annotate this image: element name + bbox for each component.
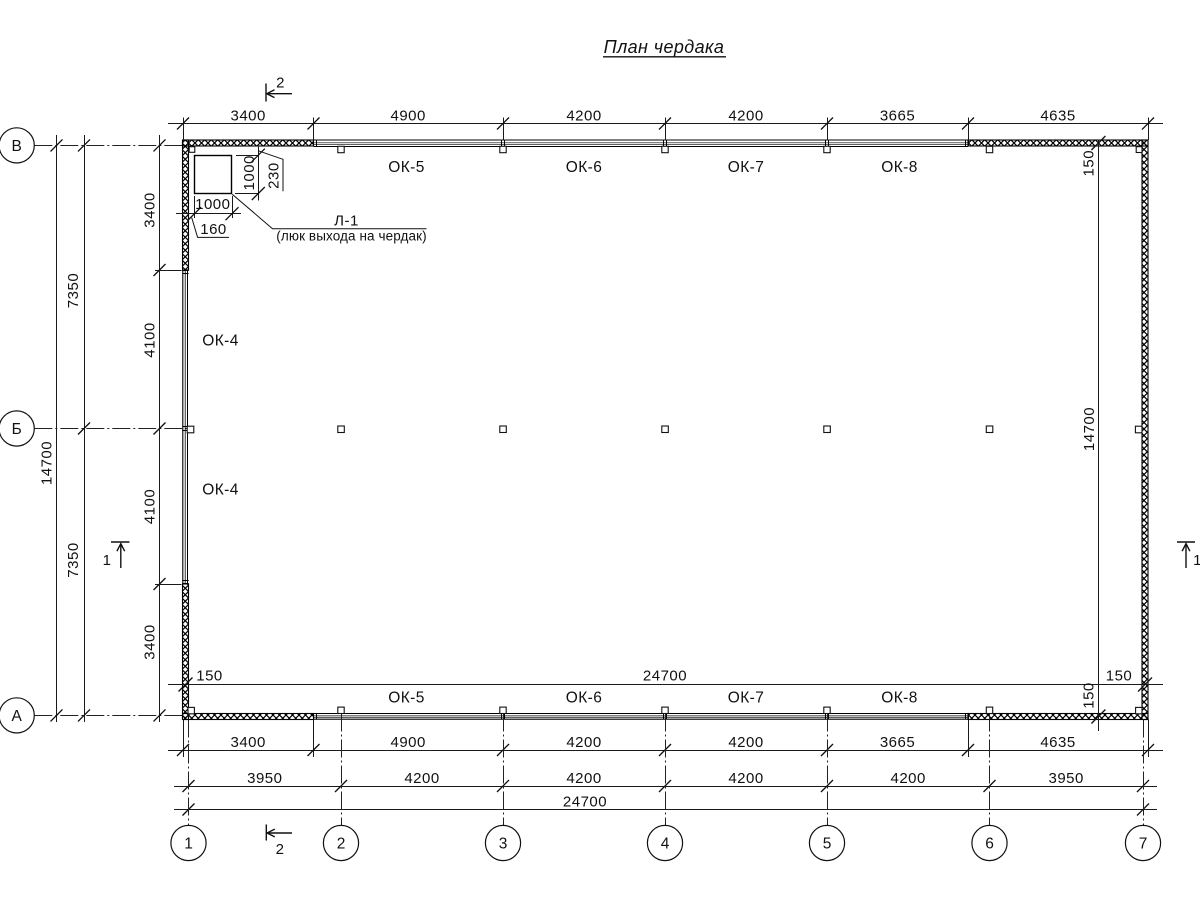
svg-text:ОК-5: ОК-5 [388,689,424,706]
svg-text:4635: 4635 [1040,108,1075,125]
svg-text:4200: 4200 [728,734,763,751]
svg-text:1: 1 [103,552,112,569]
svg-text:А: А [12,708,23,725]
svg-text:7350: 7350 [65,273,82,308]
svg-text:ОК-6: ОК-6 [566,159,602,176]
svg-text:1: 1 [184,836,193,853]
svg-text:7: 7 [1139,836,1148,853]
svg-text:4200: 4200 [404,770,439,787]
svg-text:4200: 4200 [728,770,763,787]
svg-text:3400: 3400 [141,192,158,227]
svg-text:150: 150 [196,668,223,685]
svg-text:4200: 4200 [566,734,601,751]
svg-text:7350: 7350 [65,542,82,577]
svg-text:ОК-6: ОК-6 [566,689,602,706]
svg-text:4: 4 [661,836,670,853]
svg-text:4900: 4900 [391,734,426,751]
svg-text:3400: 3400 [141,624,158,659]
svg-text:3400: 3400 [231,108,266,125]
svg-text:ОК-7: ОК-7 [728,159,764,176]
svg-text:24700: 24700 [643,668,687,685]
svg-text:24700: 24700 [563,794,607,811]
svg-text:ОК-4: ОК-4 [202,482,238,499]
svg-text:ОК-7: ОК-7 [728,689,764,706]
svg-text:150: 150 [1081,682,1098,709]
svg-text:3950: 3950 [1049,770,1084,787]
svg-text:ОК-8: ОК-8 [881,159,917,176]
svg-text:6: 6 [985,836,994,853]
svg-text:1000: 1000 [241,155,258,190]
svg-text:1: 1 [1193,552,1200,569]
svg-text:(люк выхода на чердак): (люк выхода на чердак) [276,229,426,244]
svg-text:3400: 3400 [231,734,266,751]
svg-text:3665: 3665 [880,734,915,751]
svg-text:160: 160 [200,221,227,238]
svg-text:4635: 4635 [1040,734,1075,751]
svg-text:4200: 4200 [728,108,763,125]
svg-text:4100: 4100 [141,322,158,357]
svg-text:В: В [12,138,22,155]
svg-text:3665: 3665 [880,108,915,125]
svg-text:4100: 4100 [141,489,158,524]
svg-text:ОК-4: ОК-4 [202,332,238,349]
svg-text:ОК-5: ОК-5 [388,159,424,176]
svg-text:150: 150 [1106,668,1133,685]
svg-text:1000: 1000 [195,196,230,213]
svg-text:4200: 4200 [891,770,926,787]
svg-text:14700: 14700 [38,441,55,485]
svg-text:4200: 4200 [566,108,601,125]
svg-text:4900: 4900 [391,108,426,125]
svg-text:14700: 14700 [1081,407,1098,451]
svg-text:4200: 4200 [566,770,601,787]
svg-text:150: 150 [1081,150,1098,177]
svg-text:230: 230 [265,162,282,189]
svg-text:3: 3 [499,836,508,853]
svg-text:Б: Б [12,421,22,438]
svg-text:ОК-8: ОК-8 [881,689,917,706]
svg-text:5: 5 [823,836,832,853]
svg-text:План чердака: План чердака [604,37,725,57]
svg-text:2: 2 [276,74,285,91]
svg-text:3950: 3950 [247,770,282,787]
svg-text:Л-1: Л-1 [334,212,359,229]
svg-text:2: 2 [276,841,285,858]
svg-text:2: 2 [337,836,346,853]
